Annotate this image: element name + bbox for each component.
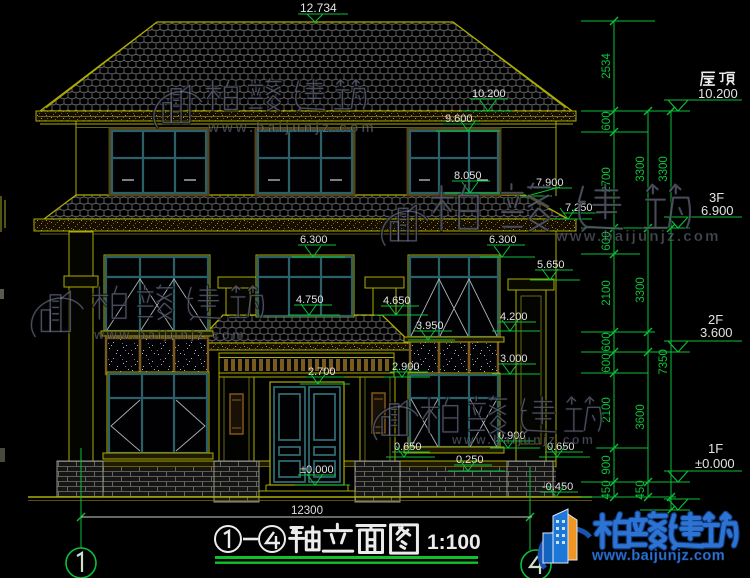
svg-text:±0.000: ±0.000 (695, 456, 735, 471)
svg-text:6.300: 6.300 (300, 234, 328, 246)
svg-text:2100: 2100 (601, 280, 613, 306)
svg-text:600: 600 (601, 353, 613, 372)
svg-text:-0.450: -0.450 (542, 481, 573, 493)
svg-text:3300: 3300 (635, 277, 647, 303)
svg-text:12300: 12300 (291, 505, 323, 517)
svg-text:1F: 1F (708, 441, 723, 456)
svg-text:12.734: 12.734 (300, 1, 337, 15)
svg-text:3.000: 3.000 (500, 353, 528, 365)
svg-text:www.baijunjz.com: www.baijunjz.com (451, 433, 595, 447)
svg-text:4.200: 4.200 (500, 311, 528, 323)
svg-text:450: 450 (635, 480, 647, 499)
svg-text:450: 450 (601, 480, 613, 499)
svg-text:6.900: 6.900 (701, 203, 734, 218)
svg-text:7350: 7350 (658, 349, 670, 375)
svg-text:www.baijunjz.com: www.baijunjz.com (555, 228, 721, 245)
svg-text:www.baijunjz.com: www.baijunjz.com (591, 548, 725, 564)
svg-text:5.650: 5.650 (537, 259, 565, 271)
svg-text:6.300: 6.300 (489, 234, 517, 246)
svg-text:www.baijunjz.com: www.baijunjz.com (93, 327, 246, 342)
svg-text:3300: 3300 (658, 156, 670, 182)
svg-text:4.650: 4.650 (383, 295, 411, 307)
svg-text:4.750: 4.750 (296, 294, 324, 306)
svg-text:3.600: 3.600 (700, 325, 733, 340)
svg-text:8.050: 8.050 (454, 170, 482, 182)
svg-text:9.600: 9.600 (445, 113, 473, 125)
svg-text:10.200: 10.200 (698, 86, 738, 101)
svg-text:1:100: 1:100 (427, 531, 481, 554)
svg-text:900: 900 (601, 455, 613, 474)
svg-text:2534: 2534 (601, 53, 613, 79)
svg-text:3.950: 3.950 (416, 320, 444, 332)
svg-text:600: 600 (601, 111, 613, 130)
svg-text:3600: 3600 (635, 404, 647, 430)
svg-text:www.baijunjz.com: www.baijunjz.com (207, 119, 377, 135)
svg-text:600: 600 (601, 332, 613, 351)
svg-text:10.200: 10.200 (472, 88, 506, 100)
svg-text:±0.000: ±0.000 (300, 464, 334, 476)
svg-text:3300: 3300 (635, 156, 647, 182)
